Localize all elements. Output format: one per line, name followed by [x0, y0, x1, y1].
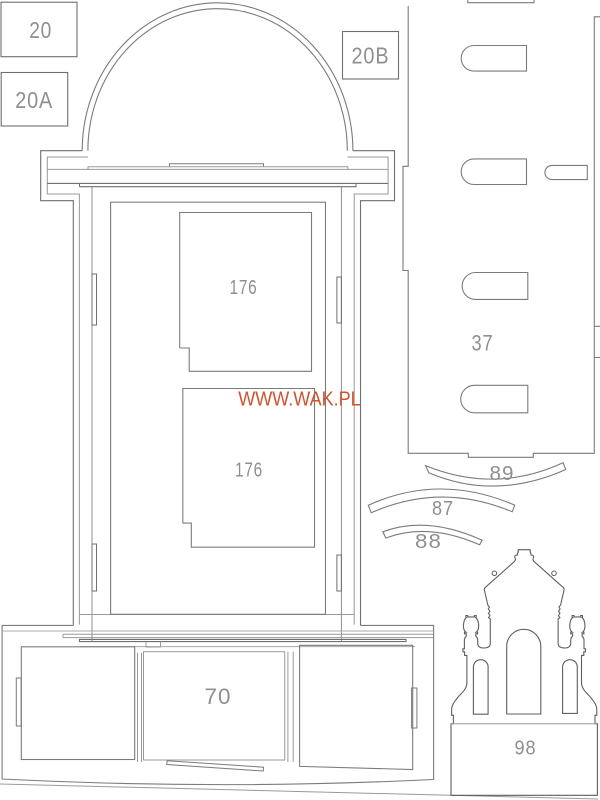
svg-text:37: 37 — [472, 330, 494, 355]
svg-text:20B: 20B — [352, 43, 390, 69]
svg-text:20: 20 — [29, 17, 52, 43]
svg-text:176: 176 — [235, 459, 263, 481]
svg-text:WWW.WAK.PL: WWW.WAK.PL — [238, 388, 361, 411]
svg-text:98: 98 — [515, 738, 537, 760]
svg-text:89: 89 — [490, 463, 515, 485]
svg-text:20A: 20A — [15, 87, 53, 113]
svg-text:70: 70 — [205, 684, 232, 709]
svg-text:176: 176 — [230, 277, 258, 299]
svg-text:87: 87 — [432, 498, 454, 520]
svg-text:88: 88 — [415, 531, 442, 553]
